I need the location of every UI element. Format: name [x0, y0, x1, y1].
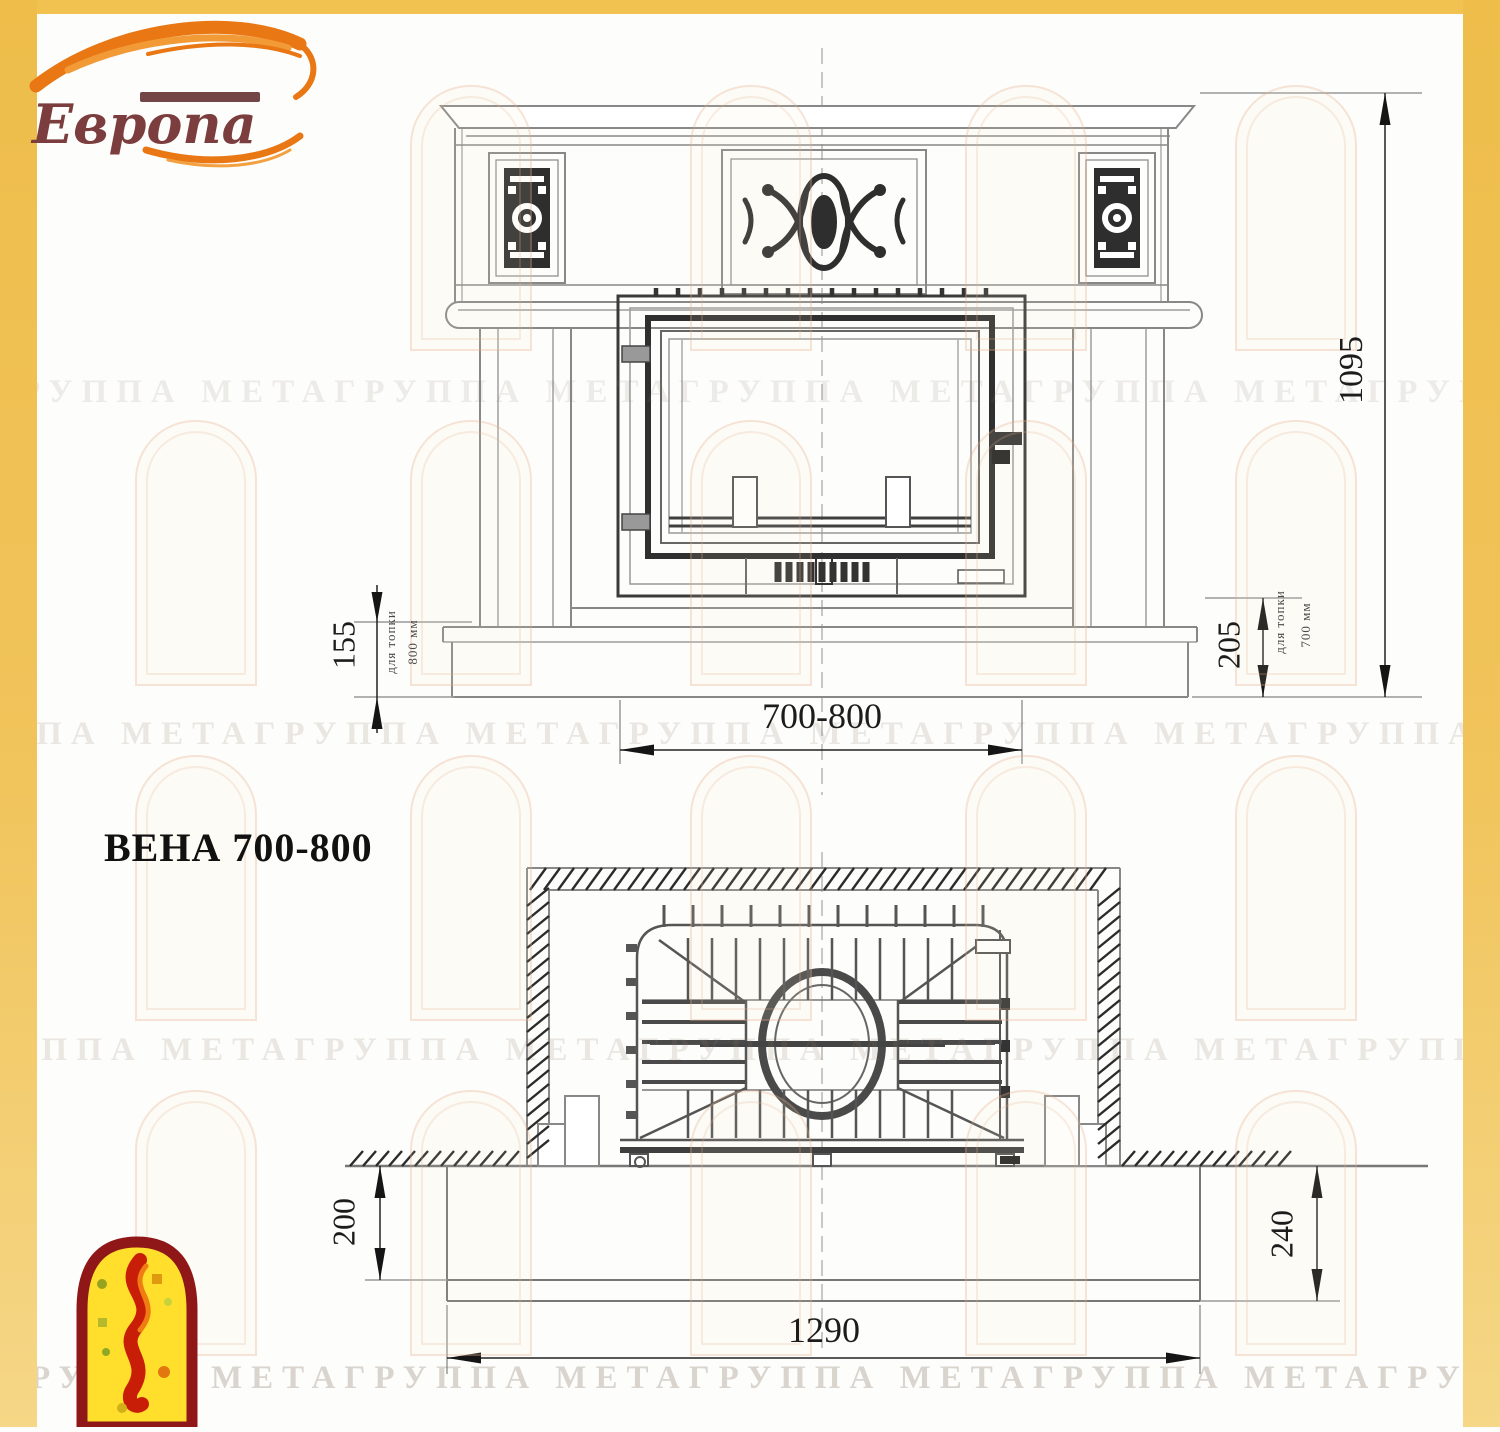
technical-drawing — [0, 0, 1500, 1427]
hearth-slab-plan — [365, 1166, 1340, 1301]
niche-walls — [527, 868, 1120, 1166]
nameplate — [958, 570, 1004, 583]
frame-right-bar — [1463, 0, 1500, 1427]
plan-view — [345, 868, 1428, 1301]
generated-hatching — [350, 288, 1291, 1166]
mantel-shelf — [441, 106, 1194, 136]
frame-left-bar — [0, 0, 37, 1427]
door-handle — [990, 432, 1022, 445]
center-ornament-panel — [722, 150, 926, 294]
brand-name: Европа — [32, 92, 257, 156]
brand-logo: Европа — [28, 4, 328, 179]
base-slab — [443, 608, 1197, 697]
hinge-bottom — [622, 514, 650, 530]
arch-flame-icon — [76, 1232, 198, 1427]
left-ornament-tile — [489, 153, 565, 283]
right-ornament-tile — [1079, 153, 1155, 283]
hinge-top — [622, 346, 650, 362]
